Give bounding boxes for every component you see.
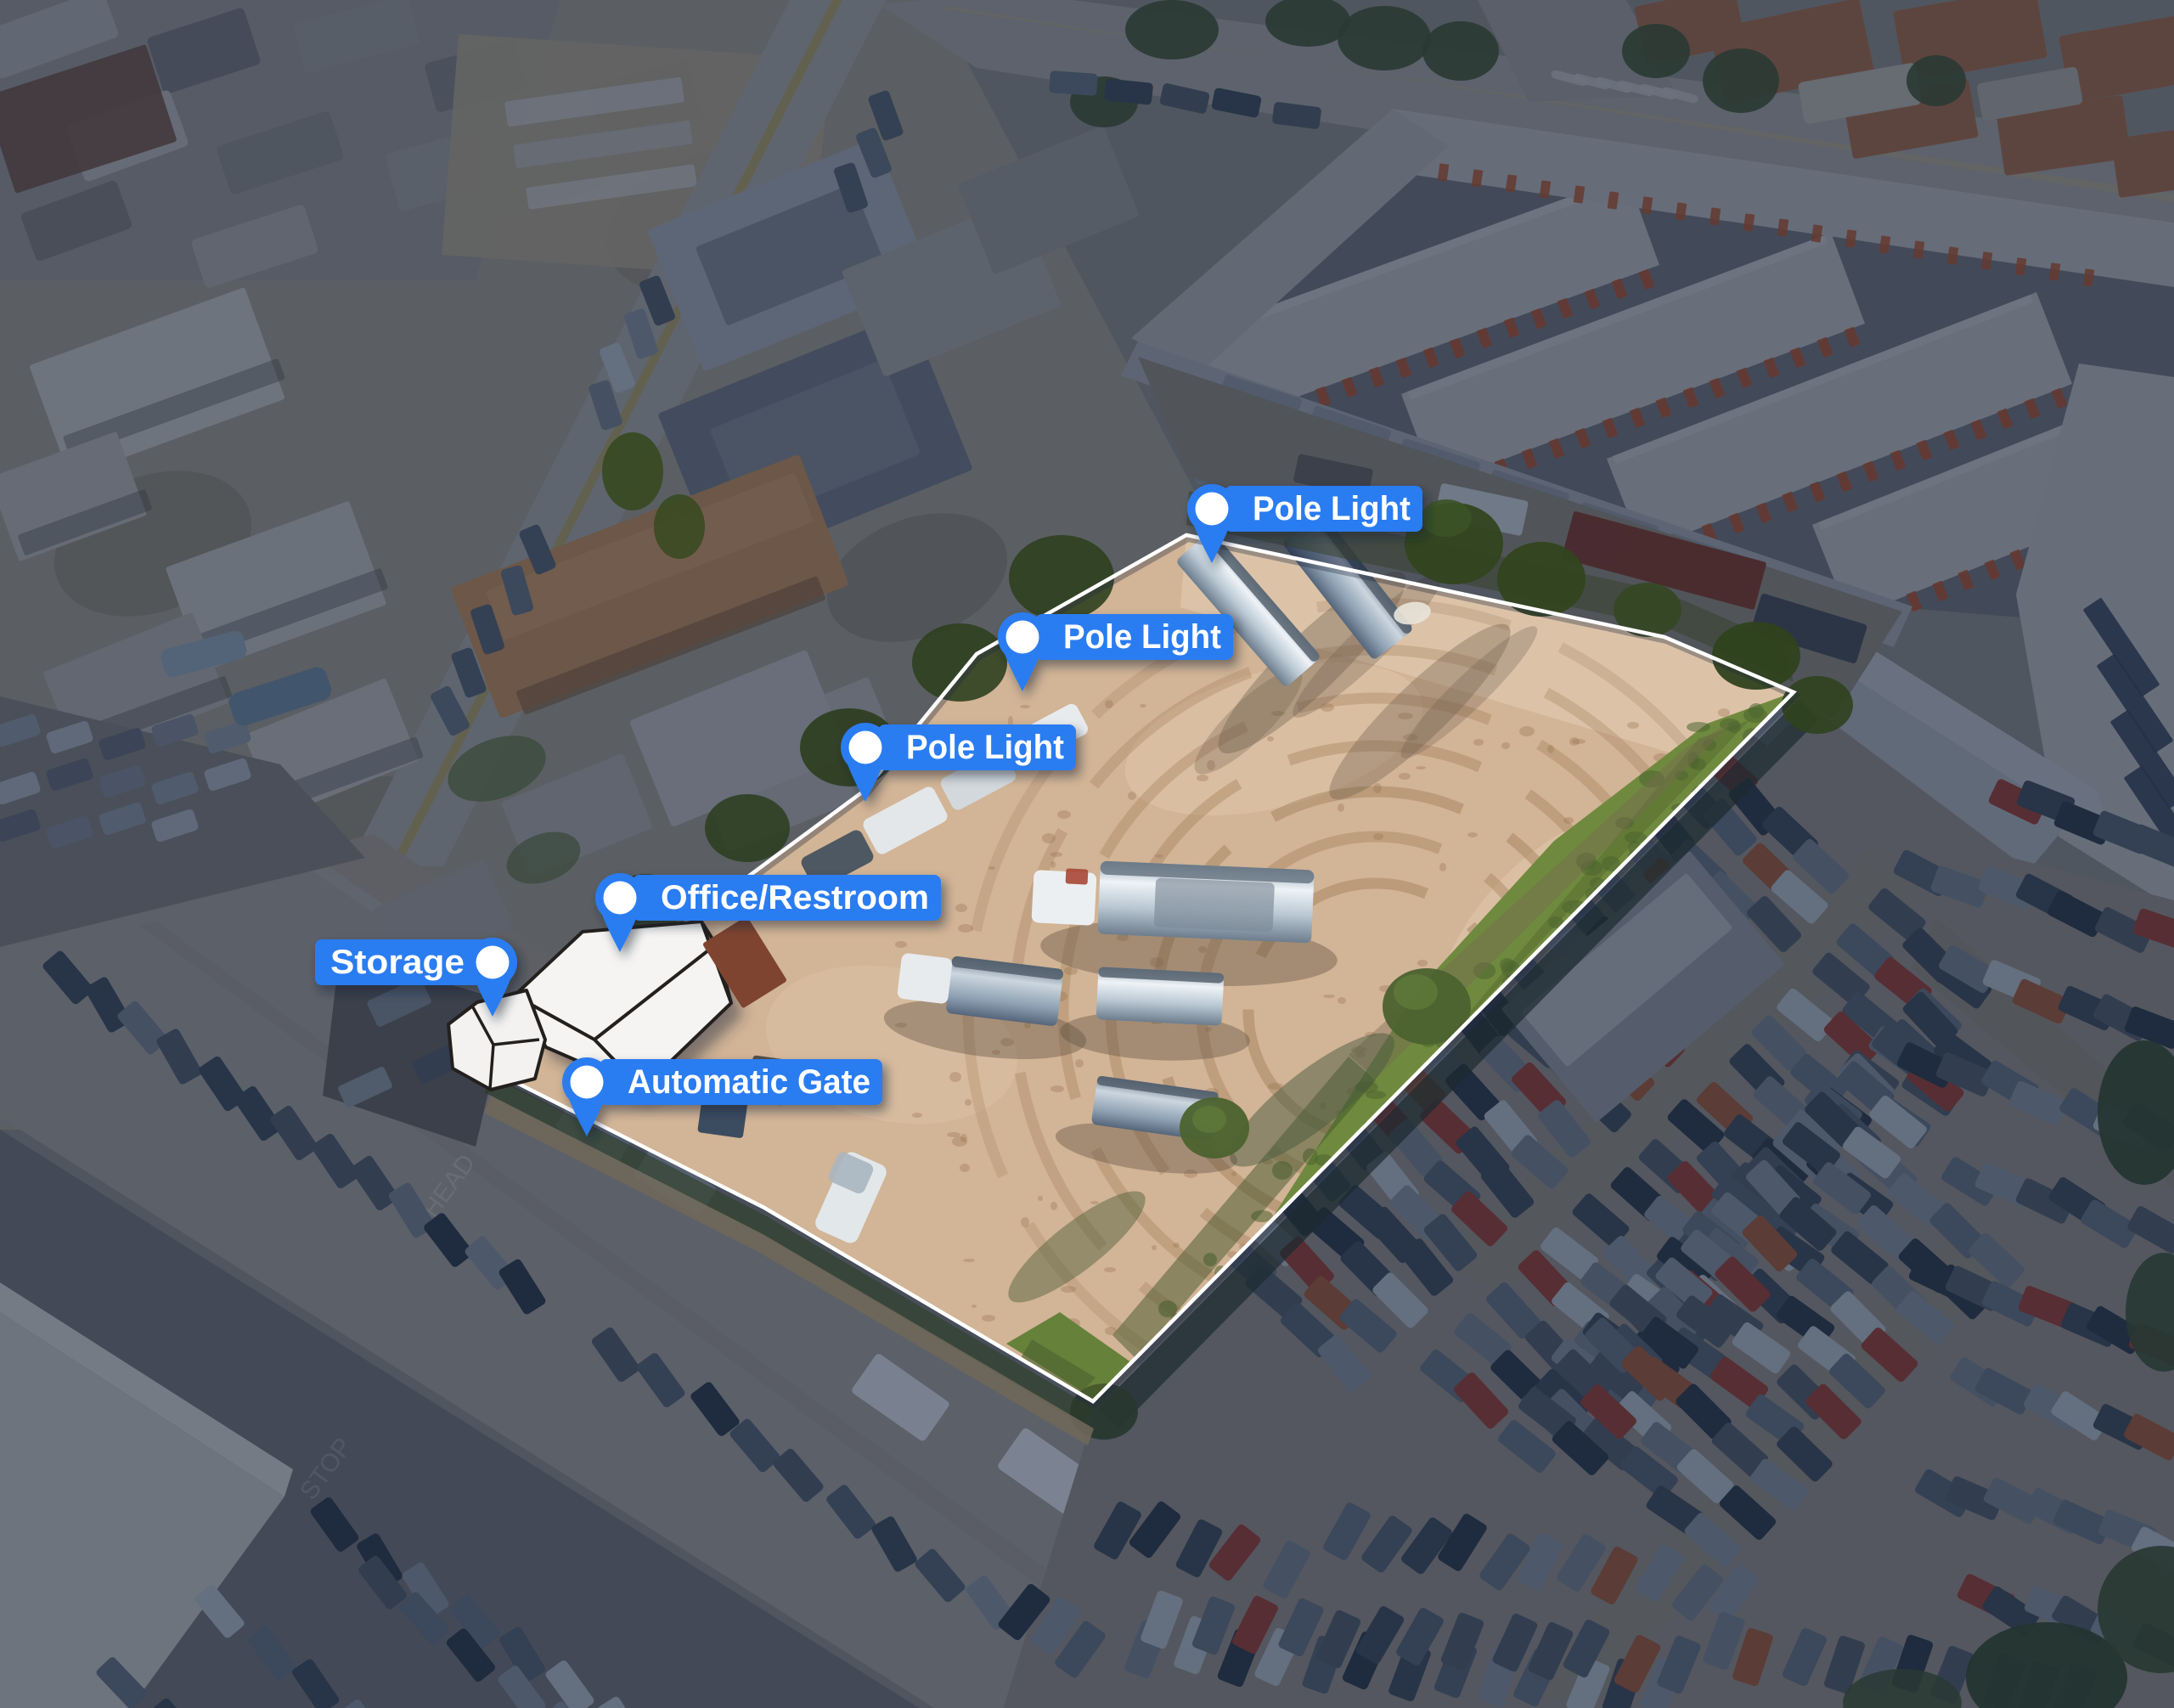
svg-text:Storage: Storage	[330, 944, 465, 981]
svg-text:Pole Light: Pole Light	[906, 729, 1064, 766]
svg-text:Pole Light: Pole Light	[1063, 618, 1221, 656]
svg-text:Automatic Gate: Automatic Gate	[628, 1063, 870, 1101]
svg-text:Pole Light: Pole Light	[1253, 490, 1411, 527]
svg-text:Office/Restroom: Office/Restroom	[661, 879, 929, 916]
